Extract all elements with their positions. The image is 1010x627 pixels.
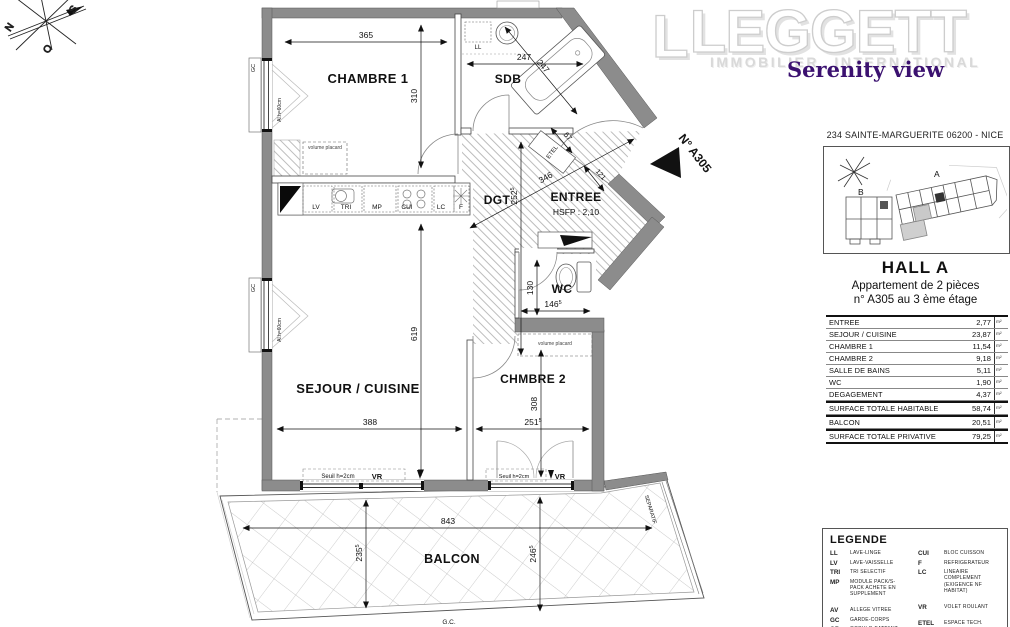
- site-building-b: [846, 197, 892, 244]
- seuil-label: Seuil h=2cm: [321, 474, 354, 480]
- room-sejour: SEJOUR / CUISINE: [296, 381, 419, 396]
- legend-text: LINEAIRE COMPLEMENT (EXIGENCE NF HABITAT…: [944, 569, 1000, 594]
- legend-abbr: LL: [830, 550, 850, 557]
- dim-619: 619: [409, 327, 419, 341]
- row-value: 5,11: [959, 366, 994, 375]
- dim-310: 310: [409, 89, 419, 103]
- hall-title: HALL A: [818, 258, 1010, 278]
- legend-text: VOLET ROULANT: [944, 604, 988, 611]
- legend-item: AVALLEGE VITREE: [830, 607, 912, 614]
- site-building-a-label: A: [934, 169, 940, 179]
- soffite-hatch: [274, 131, 653, 344]
- entrance-arrow: [650, 147, 681, 178]
- row-label: SALLE DE BAINS: [826, 366, 959, 375]
- balcony-gc-label: G.C.: [442, 619, 456, 626]
- compass-o: O: [41, 43, 55, 56]
- dim-146-5: 1465: [544, 299, 561, 309]
- leggett-logo-text: LLEGGETT: [652, 2, 1008, 62]
- gc-window-label: GC: [251, 284, 257, 292]
- legend-title: LEGENDE: [830, 534, 1000, 546]
- compass-n: N: [3, 21, 16, 33]
- vr-label: VR: [555, 472, 566, 481]
- row-value: 79,25: [959, 432, 994, 441]
- french-door-chambre2: Seuil h=2cm VR: [486, 441, 574, 491]
- row-label: SEJOUR / CUISINE: [826, 330, 959, 339]
- legend-abbr: LC: [918, 569, 944, 594]
- row-label: CHAMBRE 2: [826, 354, 959, 363]
- room-chambre1: CHAMBRE 1: [328, 71, 409, 86]
- legend-column-right: CUIBLOC CUISSON FREFRIGERATEUR LCLINEAIR…: [918, 550, 1000, 627]
- window-sejour-left: GC Al.h=60cm: [249, 278, 308, 352]
- legend-abbr: VR: [918, 604, 944, 611]
- row-label: CHAMBRE 1: [826, 342, 959, 351]
- row-value: 23,87: [959, 330, 994, 339]
- table-row: ENTREE2,77m²: [826, 317, 1008, 329]
- kitchen-lv-label: LV: [312, 204, 320, 211]
- site-building-a: [884, 155, 1007, 242]
- kitchen-cui-label: CUI: [401, 204, 412, 211]
- placard-label: volume placard: [308, 145, 342, 151]
- top-neighbour-mark: [497, 1, 539, 8]
- legend-abbr: CUI: [918, 550, 944, 557]
- legend-item: LLLAVE-LINGE: [830, 550, 912, 557]
- unit-number-label: N° A305: [676, 131, 715, 175]
- allege-label: Al.h=60cm: [277, 318, 283, 342]
- legend-item: LCLINEAIRE COMPLEMENT (EXIGENCE NF HABIT…: [918, 569, 1000, 594]
- table-row: CHAMBRE 111,54m²: [826, 341, 1008, 353]
- row-unit: m²: [994, 341, 1008, 352]
- floorplan-page: N S O: [0, 0, 1010, 627]
- row-unit: m²: [994, 389, 1008, 400]
- row-unit: m²: [994, 365, 1008, 376]
- legend-abbr: F: [918, 560, 944, 567]
- entree-hsfp: HSFP : 2,10: [553, 207, 599, 217]
- ll-label: LL: [475, 45, 482, 51]
- row-label: DEGAGEMENT: [826, 390, 959, 399]
- row-value: 58,74: [959, 404, 994, 413]
- table-row-balcon: BALCON20,51m²: [826, 415, 1008, 429]
- legend-text: REFRIGERATEUR: [944, 560, 989, 567]
- dim-308: 308: [529, 397, 539, 411]
- table-row: SALLE DE BAINS5,11m²: [826, 365, 1008, 377]
- row-unit: m²: [994, 403, 1008, 414]
- placard-label: volume placard: [538, 341, 572, 347]
- row-value: 9,18: [959, 354, 994, 363]
- row-unit: m²: [994, 377, 1008, 388]
- legend-text: ESPACE TECH. ELEC. DU LOGEMENT: [944, 620, 996, 627]
- allege-label: Al.h=60cm: [277, 98, 283, 122]
- apartment-type: Appartement de 2 pièces: [818, 280, 1010, 292]
- row-label: SURFACE TOTALE PRIVATIVE: [826, 432, 959, 441]
- row-value: 11,54: [959, 342, 994, 351]
- legend-item: CUIBLOC CUISSON: [918, 550, 1000, 557]
- row-unit: m²: [994, 431, 1008, 442]
- legend-item: VRVOLET ROULANT: [918, 604, 1000, 611]
- areas-table: ENTREE2,77m² SEJOUR / CUISINE23,87m² CHA…: [826, 315, 1008, 444]
- legend-item: MPMODULE PACK/S-PACK ACHETE EN SUPPLEMEN…: [830, 579, 912, 598]
- legend-abbr: LV: [830, 560, 850, 567]
- site-plan-box: B A: [823, 146, 1010, 254]
- dim-843: 843: [441, 516, 455, 526]
- row-value: 20,51: [959, 418, 994, 427]
- site-plan-drawing: B A: [824, 147, 1007, 251]
- legend-text: LAVE-VAISSELLE: [850, 560, 893, 567]
- legend-text: ALLEGE VITREE: [850, 607, 892, 614]
- table-row-total-habitable: SURFACE TOTALE HABITABLE58,74m²: [826, 401, 1008, 415]
- dim-247: 247: [517, 52, 531, 62]
- legend-column-left: LLLAVE-LINGE LVLAVE-VAISSELLE TRITRI SEL…: [830, 550, 912, 627]
- row-unit: m²: [994, 353, 1008, 364]
- kitchen-counter: LV TRI MP CUI LC F: [278, 183, 470, 215]
- table-row: DEGAGEMENT4,37m²: [826, 389, 1008, 401]
- bay-window-sejour: Seuil h=2cm VR: [300, 469, 424, 491]
- legend-abbr: TRI: [830, 569, 850, 576]
- kitchen-tri-label: TRI: [341, 204, 352, 211]
- legend-item: ETELESPACE TECH. ELEC. DU LOGEMENT: [918, 620, 1000, 627]
- row-label: WC: [826, 378, 959, 387]
- kitchen-f-label: F: [459, 204, 463, 211]
- room-balcon: BALCON: [424, 552, 480, 566]
- table-row-total-privative: SURFACE TOTALE PRIVATIVE79,25m²: [826, 429, 1008, 442]
- seuil-label: Seuil h=2cm: [499, 474, 530, 480]
- legend-text: GARDE-CORPS: [850, 617, 889, 624]
- gc-window-label: GC: [251, 64, 257, 72]
- room-chambre2: CHMBRE 2: [500, 372, 566, 386]
- vr-label: VR: [372, 472, 383, 481]
- kitchen-mp-label: MP: [372, 204, 382, 211]
- legend-abbr: GC: [830, 617, 850, 624]
- room-entree: ENTREE: [550, 190, 601, 204]
- apartment-header: HALL A Appartement de 2 pièces n° A305 a…: [818, 258, 1010, 306]
- room-wc: WC: [552, 282, 573, 296]
- row-value: 4,37: [959, 390, 994, 399]
- row-value: 2,77: [959, 318, 994, 327]
- legend-box: LEGENDE LLLAVE-LINGE LVLAVE-VAISSELLE TR…: [822, 528, 1008, 627]
- site-building-b-label: B: [858, 187, 864, 197]
- kitchen-lc-label: LC: [437, 204, 446, 211]
- legend-abbr: MP: [830, 579, 850, 598]
- legend-item: LVLAVE-VAISSELLE: [830, 560, 912, 567]
- balcony-area: [220, 472, 704, 620]
- dim-365: 365: [359, 30, 373, 40]
- apartment-number: n° A305 au 3 ème étage: [818, 294, 1010, 306]
- dim-130: 130: [525, 281, 535, 295]
- dim-388: 388: [363, 417, 377, 427]
- legend-abbr: AV: [830, 607, 850, 614]
- room-dgt: DGT: [484, 193, 511, 207]
- dim-251-5: 2515: [524, 417, 541, 427]
- table-row: SEJOUR / CUISINE23,87m²: [826, 329, 1008, 341]
- project-address: 234 SAINTE-MARGUERITE 06200 - NICE: [820, 130, 1010, 140]
- row-label: SURFACE TOTALE HABITABLE: [826, 404, 959, 413]
- room-sdb: SDB: [495, 72, 522, 86]
- site-compass-icon: [838, 157, 870, 187]
- legend-item: GCGARDE-CORPS: [830, 617, 912, 624]
- legend-text: BLOC CUISSON: [944, 550, 984, 557]
- legend-text: TRI SELECTIF: [850, 569, 886, 576]
- legend-text: MODULE PACK/S-PACK ACHETE EN SUPPLEMENT: [850, 579, 908, 598]
- row-unit: m²: [994, 329, 1008, 340]
- leggett-logo-mark: L: [652, 7, 688, 67]
- legend-item: TRITRI SELECTIF: [830, 569, 912, 576]
- row-value: 1,90: [959, 378, 994, 387]
- window-chambre1: GC Al.h=60cm: [249, 58, 308, 132]
- leggett-logo: LLEGGETT IMMOBILIER INTERNATIONAL: [652, 2, 1008, 102]
- unit-tag: N° A305: [650, 131, 715, 178]
- program-tagline: Serenity view: [787, 57, 944, 82]
- compass-rose: N S O: [3, 0, 86, 56]
- row-label: BALCON: [826, 418, 959, 427]
- legend-abbr: ETEL: [918, 620, 944, 627]
- legend-text: LAVE-LINGE: [850, 550, 881, 557]
- row-label: ENTREE: [826, 318, 959, 327]
- row-unit: m²: [994, 417, 1008, 428]
- table-row: CHAMBRE 29,18m²: [826, 353, 1008, 365]
- row-unit: m²: [994, 317, 1008, 328]
- table-row: WC1,90m²: [826, 377, 1008, 389]
- legend-item: FREFRIGERATEUR: [918, 560, 1000, 567]
